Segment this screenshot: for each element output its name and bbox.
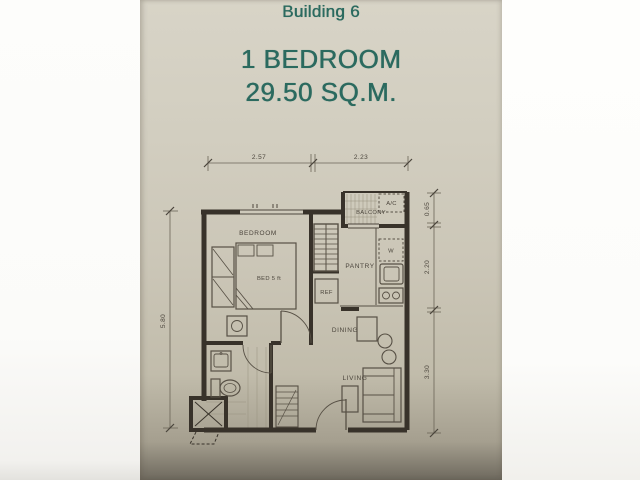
bathroom-sink [211, 351, 231, 371]
wardrobe [212, 247, 234, 307]
coffee-table [342, 386, 358, 412]
photo-right-margin [502, 0, 640, 480]
dim-top-right: 2.23 [354, 154, 368, 161]
ac-label: A/C [386, 201, 397, 207]
sofa [363, 368, 401, 422]
floor-plan-drawing: 2.57 2.23 5.80 0.65 2.20 3.30 [155, 140, 450, 450]
nightstand [227, 316, 247, 336]
dim-right-middle: 2.20 [424, 260, 431, 274]
refrigerator-label: REF [320, 290, 333, 296]
pantry-label: PANTRY [345, 263, 374, 270]
washer-label: W [388, 249, 394, 255]
unit-type-title: 1 BEDROOM [140, 44, 502, 75]
dim-right-balcony: 0.65 [424, 202, 431, 216]
toilet [211, 379, 240, 397]
dining-label: DINING [332, 327, 358, 334]
unit-area-title: 29.50 SQ.M. [140, 77, 502, 108]
dim-top-left: 2.57 [252, 154, 266, 161]
building-title: Building 6 [140, 2, 502, 22]
bed-label: BED 5 ft [257, 276, 281, 282]
bedroom-door [281, 311, 311, 343]
photo-left-margin [0, 0, 140, 480]
storage-shelf [276, 386, 298, 427]
bedroom-label: BEDROOM [239, 230, 277, 237]
dimension-ticks [166, 159, 438, 437]
floor-plan-photo: Building 6 1 BEDROOM 29.50 SQ.M. [0, 0, 640, 480]
service-shaft [190, 398, 226, 444]
dim-left-height: 5.80 [160, 314, 167, 328]
living-label: LIVING [343, 375, 368, 382]
dining-set [357, 317, 396, 364]
balcony-label: BALCONY [356, 210, 386, 216]
dim-right-bottom: 3.30 [424, 365, 431, 379]
brochure-page: Building 6 1 BEDROOM 29.50 SQ.M. [140, 0, 502, 480]
closet [314, 224, 338, 271]
